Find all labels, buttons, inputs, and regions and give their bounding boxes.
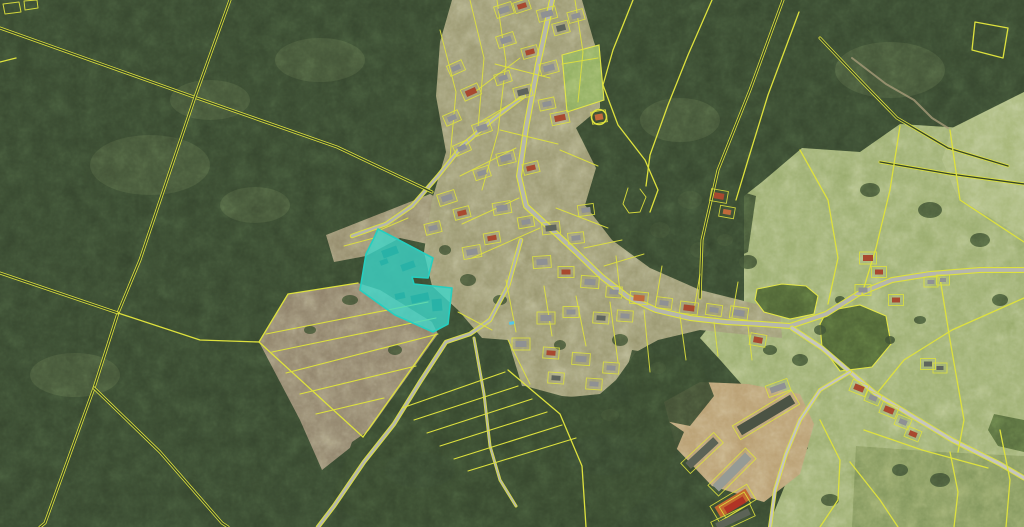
satellite-map[interactable]: [0, 0, 1024, 527]
map-layers: [0, 0, 1024, 527]
map-viewport[interactable]: [0, 0, 1024, 527]
